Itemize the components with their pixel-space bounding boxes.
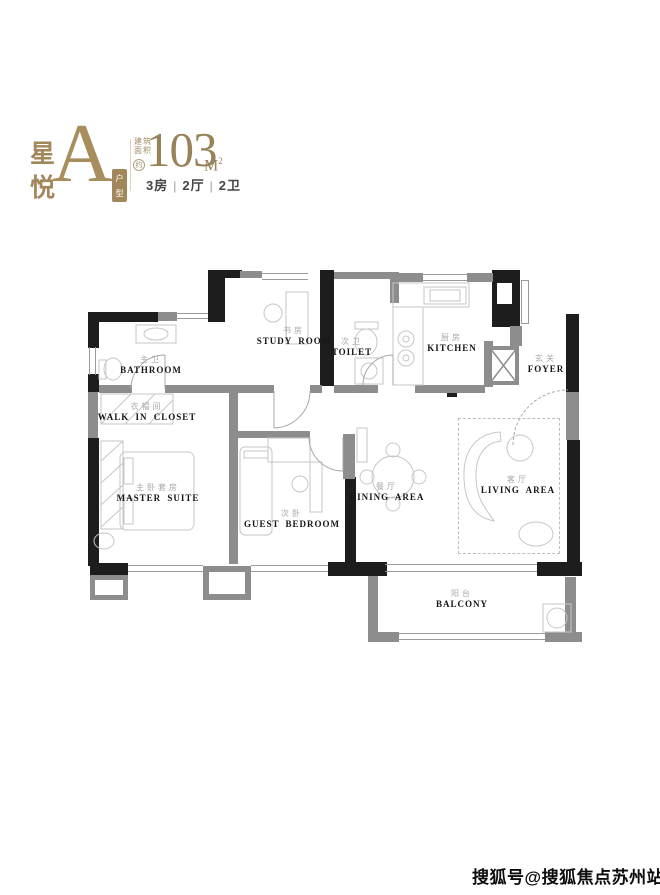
wall-segment (567, 440, 580, 566)
wall-window-notch (497, 283, 512, 304)
ac-platform-box (90, 575, 128, 600)
room-label-balcony: 阳台 BALCONY (436, 589, 488, 610)
room-label-en: BALCONY (436, 599, 488, 610)
wall-segment (565, 577, 576, 634)
watermark-text: 搜狐号@搜狐焦点苏州站 (472, 863, 660, 888)
room-label-en: MASTER SUITE (117, 493, 200, 504)
wall-segment (368, 632, 399, 642)
wall-segment (467, 273, 493, 282)
wall-segment (229, 438, 238, 564)
wall-segment (88, 392, 98, 438)
room-label-cn: 次卧 (244, 509, 340, 518)
room-label-en: STUDY ROOM (257, 336, 331, 347)
wall-segment (510, 326, 522, 346)
furniture-layer (0, 0, 660, 895)
wall-segment (415, 385, 485, 393)
room-label-en: TOILET (332, 347, 372, 358)
room-label-guest-bedroom: 次卧 GUEST BEDROOM (244, 509, 340, 530)
wall-segment (88, 438, 99, 566)
room-label-cn: 客厅 (481, 475, 555, 484)
entry-door-leaf (521, 280, 529, 324)
room-label-walk-in-closet: 衣帽间 WALK IN CLOSET (98, 402, 197, 423)
room-label-master-suite: 主卧套房 MASTER SUITE (117, 483, 200, 504)
room-label-cn: 玄关 (528, 354, 565, 363)
window (251, 565, 328, 572)
wall-segment (240, 271, 262, 278)
wall-segment (229, 392, 238, 434)
room-label-bathroom: 主卫 BATHROOM (120, 355, 182, 376)
wall-segment (566, 392, 579, 440)
balcony-slider-window (385, 564, 537, 572)
room-label-living-area: 客厅 LIVING AREA (481, 475, 555, 496)
room-label-cn: 次卫 (332, 337, 372, 346)
room-label-cn: 主卧套房 (117, 483, 200, 492)
room-label-en: GUEST BEDROOM (244, 519, 340, 530)
window (262, 273, 308, 280)
wall-segment (229, 431, 310, 438)
room-label-foyer: 玄关 FOYER (528, 354, 565, 375)
window (89, 347, 96, 375)
room-label-dining-area: 餐厅 DINING AREA (350, 482, 425, 503)
floor-plan: 主卫 BATHROOM 书房 STUDY ROOM 次卫 TOILET 厨房 K… (0, 0, 660, 895)
room-label-cn: 餐厅 (350, 482, 425, 491)
room-label-en: LIVING AREA (481, 485, 555, 496)
wall-segment (545, 632, 582, 642)
room-label-cn: 阳台 (436, 589, 488, 598)
wall-segment (310, 385, 322, 393)
wall-segment (537, 562, 582, 576)
wall-segment (158, 312, 177, 321)
window (176, 313, 208, 319)
room-label-en: WALK IN CLOSET (98, 412, 197, 423)
room-label-en: BATHROOM (120, 365, 182, 376)
room-label-en: FOYER (528, 364, 565, 375)
floorplan-page: { "header": { "brand_top": "星", "brand_b… (0, 0, 660, 895)
wall-segment (334, 272, 393, 279)
wall-segment (566, 314, 579, 392)
room-label-toilet: 次卫 TOILET (332, 337, 372, 358)
window (128, 565, 203, 572)
room-label-cn: 衣帽间 (98, 402, 197, 411)
room-label-cn: 厨房 (427, 333, 477, 342)
room-label-kitchen: 厨房 KITCHEN (427, 333, 477, 354)
wall-segment (328, 562, 387, 576)
room-label-en: DINING AREA (350, 492, 425, 503)
ac-platform-box (203, 566, 251, 600)
room-label-en: KITCHEN (427, 343, 477, 354)
room-label-cn: 书房 (257, 326, 331, 335)
room-label-study: 书房 STUDY ROOM (257, 326, 331, 347)
wall-segment (165, 385, 219, 393)
window (423, 274, 467, 281)
wall-segment (99, 385, 132, 393)
balcony-railing-window (398, 633, 545, 640)
wall-segment (334, 385, 378, 393)
wall-segment (390, 273, 423, 282)
shaft-box (488, 346, 519, 385)
wall-segment (88, 312, 99, 348)
wall-segment (88, 374, 99, 392)
wall-segment (343, 434, 355, 479)
wall-segment (208, 270, 242, 278)
room-label-cn: 主卫 (120, 355, 182, 364)
wall-segment (219, 385, 274, 393)
